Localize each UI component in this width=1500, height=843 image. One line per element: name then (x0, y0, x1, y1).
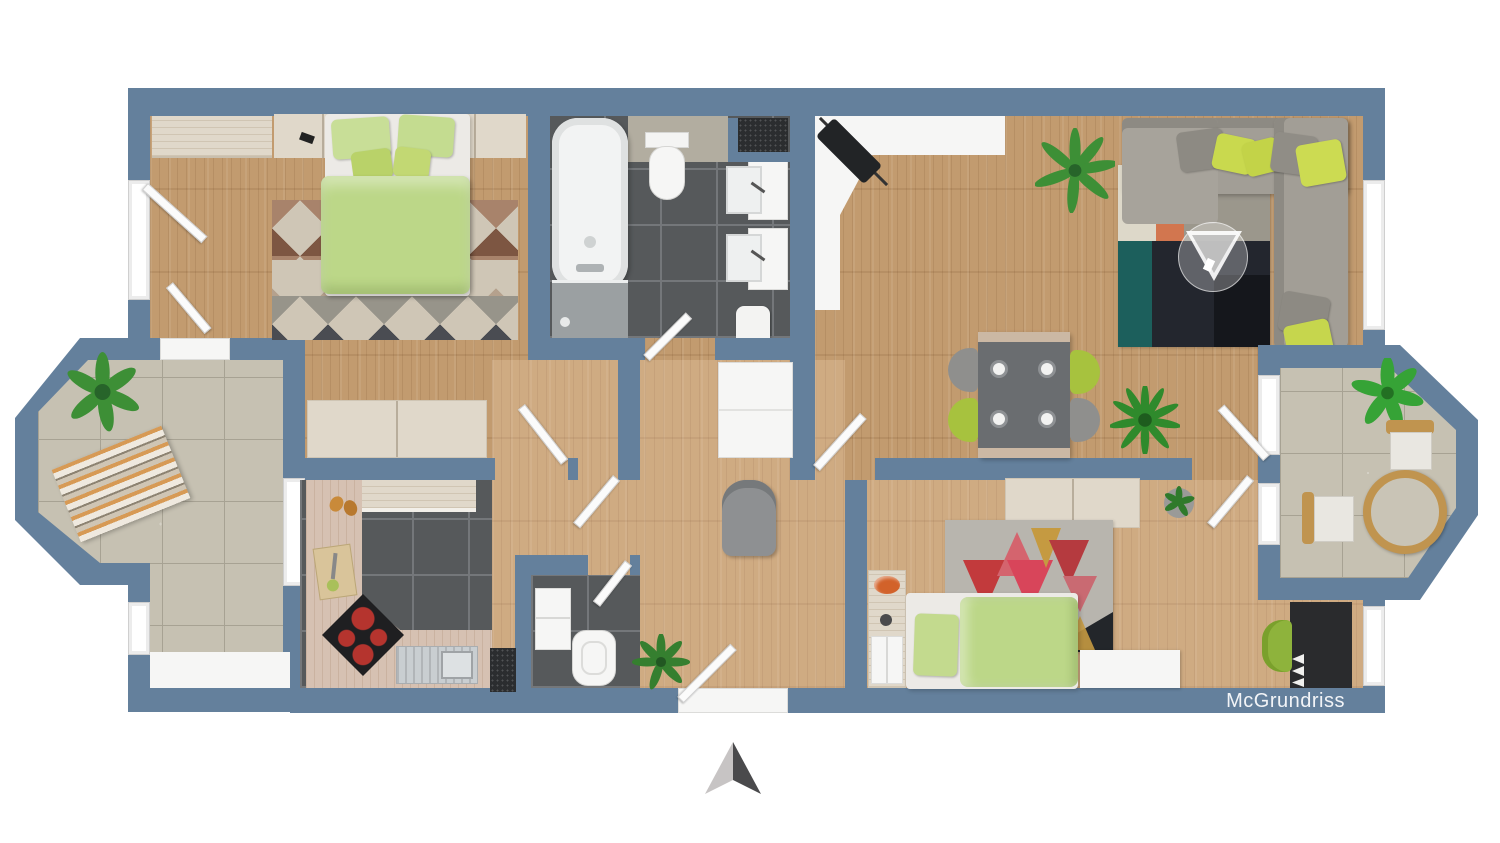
shower-area (552, 280, 628, 338)
bathtub (552, 118, 628, 290)
wall-top (128, 88, 1385, 116)
wall-bathroom-right (790, 116, 815, 480)
balcony-right-door (1258, 375, 1280, 455)
cup (880, 614, 892, 626)
kitchen-sink (396, 646, 478, 684)
balcony-side-window (128, 602, 150, 655)
balcony-right-plant (1350, 358, 1425, 428)
bathroom-niche-wall (728, 152, 790, 162)
wall-living-kids (875, 458, 1192, 480)
balcony-chair-seat (1314, 496, 1354, 542)
bedroom-wardrobe (152, 116, 272, 158)
wall-hall-left (618, 350, 640, 480)
kids-bed-pillow (913, 613, 959, 676)
balcony-chair-seat (1390, 432, 1432, 470)
wc-cabinet (535, 588, 571, 650)
wall-bedroom-bathroom (528, 116, 550, 338)
hall-wardrobe (718, 362, 793, 458)
wall-bedroom-bottom (305, 458, 495, 480)
hall-doormat (490, 648, 516, 692)
glass-coffee-table (1178, 222, 1248, 292)
dining-table (978, 332, 1070, 458)
kids-bed-duvet (960, 597, 1078, 687)
bedroom-window (128, 180, 150, 300)
wc-wall-top (515, 555, 588, 575)
watermark: McGrundriss (1140, 690, 1345, 714)
living-room-window (1363, 180, 1385, 330)
cutting-board (313, 544, 358, 601)
wall-door-pier (568, 458, 578, 480)
kitchen-upper-cabinets (362, 480, 476, 512)
kids-desk (1290, 602, 1352, 688)
balcony-plant (60, 352, 145, 432)
living-plant (1035, 128, 1115, 213)
double-bed-duvet (321, 176, 470, 294)
wc-toilet (572, 630, 616, 686)
bathroom-sink (726, 234, 762, 282)
wall-bottom-left (290, 688, 678, 713)
wall-hall-kids (845, 480, 867, 688)
hall-plant (632, 634, 690, 690)
balcony-door-sill (160, 338, 230, 360)
bathroom-sink (726, 166, 762, 214)
bed-small-pillow (392, 146, 431, 180)
north-arrow-icon (703, 742, 763, 798)
kids-desk-chair (1262, 620, 1292, 672)
balcony-round-table (1363, 470, 1447, 554)
toilet (645, 132, 689, 204)
balcony-left-white-panel (150, 652, 290, 688)
balcony-right-window (1258, 483, 1280, 545)
orange-bowl (874, 576, 900, 594)
kids-room-window (1363, 606, 1385, 686)
kids-dresser (1080, 650, 1180, 688)
balcony-chair (1302, 492, 1314, 544)
nightstand-drawers (871, 636, 903, 684)
hall-chair (722, 480, 776, 556)
bathroom-dark-mat (738, 118, 788, 152)
bedroom-sideboard (307, 400, 487, 458)
dining-plant (1110, 386, 1180, 454)
kids-plant-pot (1160, 482, 1198, 522)
floor-plan: McGrundriss (0, 0, 1500, 843)
